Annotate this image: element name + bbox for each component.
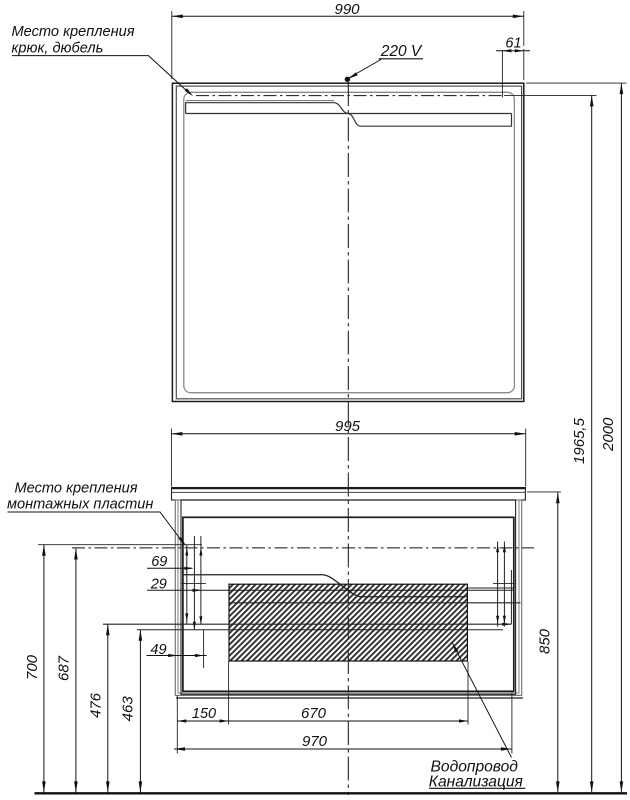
- svg-text:Место крепления: Место крепления: [12, 24, 135, 40]
- svg-text:476: 476: [87, 692, 104, 718]
- svg-text:687: 687: [55, 655, 72, 681]
- svg-text:Место крепления: Место крепления: [15, 481, 138, 497]
- svg-text:970: 970: [302, 733, 328, 750]
- svg-text:2000: 2000: [600, 417, 617, 452]
- svg-text:700: 700: [24, 654, 41, 680]
- svg-text:69: 69: [151, 554, 167, 570]
- svg-text:150: 150: [192, 706, 216, 722]
- svg-text:850: 850: [537, 628, 554, 654]
- svg-text:220 V: 220 V: [380, 43, 423, 60]
- svg-text:990: 990: [334, 1, 360, 18]
- svg-text:монтажных пластин: монтажных пластин: [7, 497, 153, 513]
- svg-text:1965,5: 1965,5: [571, 417, 588, 464]
- svg-text:995: 995: [335, 418, 361, 435]
- svg-text:463: 463: [120, 696, 137, 722]
- svg-text:61: 61: [505, 36, 521, 52]
- svg-text:крюк, дюбель: крюк, дюбель: [12, 41, 104, 57]
- svg-text:670: 670: [301, 705, 327, 722]
